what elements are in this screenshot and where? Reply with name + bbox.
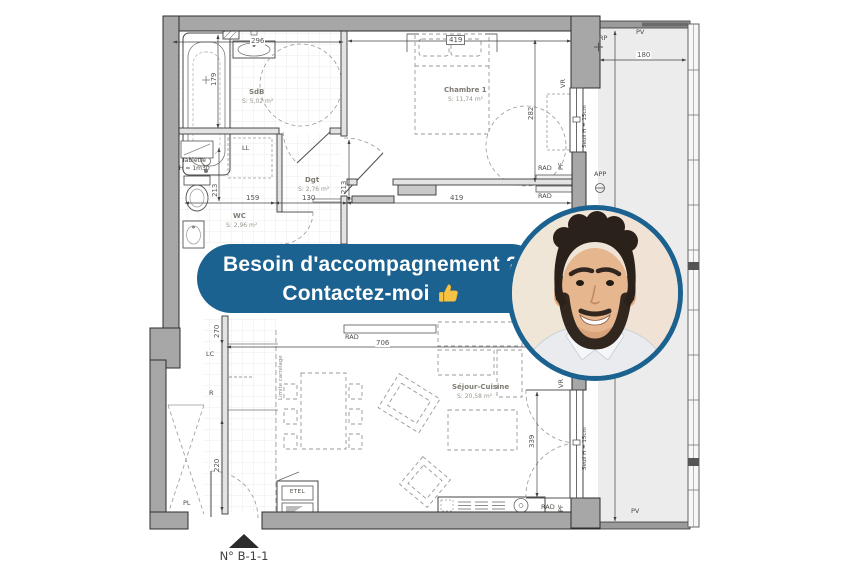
dim-130: 130 (302, 194, 315, 202)
rug (448, 410, 517, 450)
label-rad-3: RAD (345, 334, 359, 341)
closet-pl (168, 405, 204, 514)
dim-419-bottom: 419 (450, 194, 463, 202)
label-ll: LL (242, 145, 249, 152)
room-area-dgt: S: 2,76 m² (298, 186, 329, 194)
dim-419-top: 419 (446, 35, 465, 45)
room-name-dgt: Dgt (305, 176, 319, 184)
label-pv-top: PV (636, 29, 644, 36)
dim-213-left: 213 (211, 184, 219, 197)
shelf-tablette (181, 141, 213, 158)
dim-282: 282 (527, 107, 535, 120)
dim-213-mid: 213 (340, 181, 348, 194)
label-etel: ETEL (282, 489, 313, 495)
eye-right (606, 280, 614, 286)
floor-plan-page: 296 419 179 282 213 213 159 130 419 270 … (0, 0, 860, 566)
label-vr-chambre: VR (560, 79, 567, 88)
label-pv-bottom: PV (631, 508, 639, 515)
hand-basin (183, 221, 204, 248)
label-rad-2: RAD (538, 193, 552, 200)
radiator-chambre (398, 185, 436, 195)
label-rp: RP (599, 35, 607, 42)
label-r: R (209, 390, 214, 397)
radiator-sejour-north (344, 325, 436, 333)
roller-shutter-zone (547, 94, 573, 150)
entrance-arrow-icon (229, 534, 259, 548)
eye-left (576, 280, 584, 286)
dim-180: 180 (636, 51, 651, 59)
agent-photo (507, 205, 683, 381)
room-area-sdb: S: 5,02 m² (242, 98, 273, 106)
banner-line1: Besoin d'accompagnement ? (223, 250, 519, 279)
room-area-sejour: S: 20,58 m² (457, 393, 492, 401)
thumbs-up-icon (437, 282, 460, 305)
banner-line2: Contactez-moi (282, 279, 459, 308)
room-name-sdb: SdB (249, 88, 264, 96)
room-area-wc: S: 2,96 m² (226, 222, 257, 230)
dim-706: 706 (375, 339, 390, 347)
label-rad-1: RAD (538, 165, 552, 172)
dim-339: 339 (528, 435, 536, 448)
contact-banner[interactable]: Besoin d'accompagnement ? Contactez-moi (197, 244, 545, 313)
dining-table (284, 373, 362, 449)
dim-159: 159 (246, 194, 259, 202)
label-tablette-h: H = 1m30 (179, 165, 210, 172)
label-tablette: Tablette (182, 157, 206, 164)
label-vr-sejour: VR (558, 379, 565, 388)
agent-portrait-illustration (512, 210, 678, 376)
dim-270: 270 (213, 325, 221, 338)
label-pl: PL (183, 500, 191, 507)
kitchen-counter (438, 497, 545, 514)
toilet (184, 176, 210, 211)
dim-220: 220 (213, 459, 221, 472)
room-name-sejour: Séjour-Cuisine (452, 383, 509, 391)
label-seuil-chambre: Seuil H = 15cm (582, 105, 588, 148)
sofa (378, 374, 440, 433)
room-area-chambre: S: 11,74 m² (448, 96, 483, 104)
bed (407, 34, 497, 134)
label-limite-carrelage: Limite carrelage (278, 355, 284, 400)
label-pf-chambre: PF (558, 162, 565, 170)
room-name-wc: WC (233, 212, 246, 220)
dim-179: 179 (210, 73, 218, 86)
dim-296: 296 (250, 37, 265, 45)
label-app: APP (594, 171, 606, 178)
turning-circle-chambre (486, 106, 566, 186)
room-name-chambre: Chambre 1 (444, 86, 487, 94)
label-seuil-sejour: Seuil H = 15cm (582, 427, 588, 470)
label-lc: LC (206, 351, 214, 358)
unit-number: N° B-1-1 (208, 549, 280, 563)
balcony-railing (688, 24, 699, 527)
label-pf-sejour: PF (558, 504, 565, 512)
label-rad-4: RAD (541, 504, 555, 511)
